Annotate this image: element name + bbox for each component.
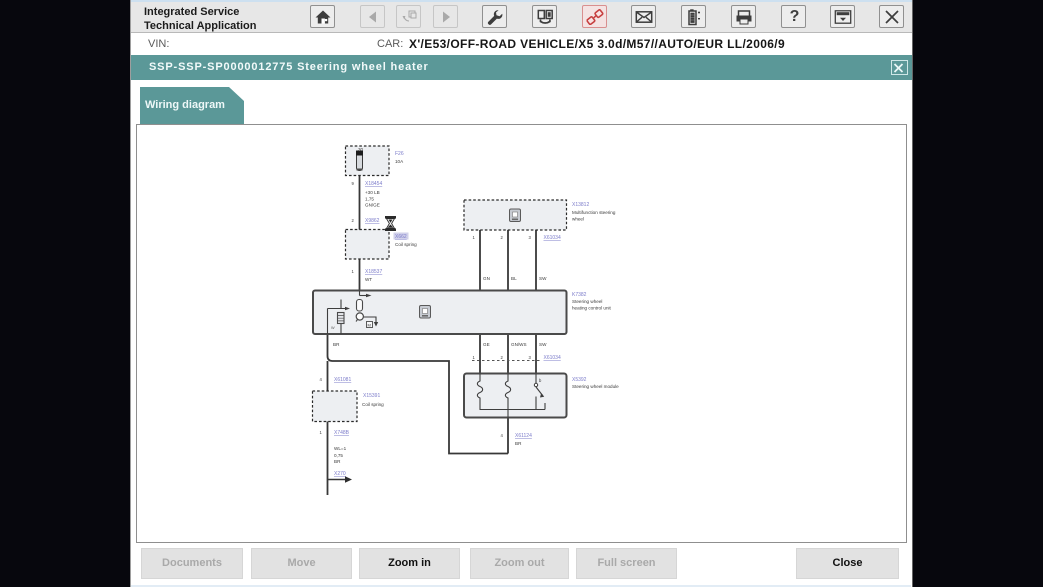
svg-text:9: 9: [352, 181, 355, 186]
svg-text:4: 4: [320, 377, 323, 382]
svg-text:1: 1: [320, 430, 323, 435]
svg-text:X61034: X61034: [544, 355, 561, 361]
svg-text:WL=1: WL=1: [334, 446, 347, 451]
svg-text:SW: SW: [539, 342, 547, 347]
svg-text:GE: GE: [483, 342, 490, 347]
svg-text:2: 2: [501, 235, 504, 240]
svg-text:Multifunction steering: Multifunction steering: [572, 210, 616, 215]
svg-text:X61034: X61034: [544, 235, 561, 241]
svg-text:10A: 10A: [395, 159, 404, 164]
svg-text:3: 3: [529, 235, 532, 240]
svg-text:30: 30: [358, 147, 364, 152]
svg-text:Coil spring: Coil spring: [362, 402, 384, 407]
svg-text:SW: SW: [539, 276, 547, 281]
svg-text:M: M: [368, 322, 371, 327]
svg-text:BL: BL: [511, 276, 517, 281]
svg-text:Steering wheel module: Steering wheel module: [572, 384, 619, 389]
svg-text:X61081: X61081: [334, 377, 351, 383]
svg-text:1,75: 1,75: [365, 197, 374, 202]
svg-text:X18537: X18537: [365, 269, 382, 275]
svg-text:4: 4: [501, 433, 504, 438]
svg-text:1: 1: [473, 355, 476, 360]
svg-text:0,75: 0,75: [334, 453, 343, 458]
svg-text:X9862: X9862: [365, 218, 380, 224]
svg-text:WT: WT: [365, 277, 372, 282]
svg-text:GN/GE: GN/GE: [365, 203, 380, 208]
svg-text:2: 2: [352, 218, 355, 223]
svg-text:Steering wheel: Steering wheel: [572, 299, 602, 304]
svg-text:X662: X662: [395, 234, 407, 240]
svg-text:BR: BR: [333, 342, 340, 347]
svg-text:BR: BR: [515, 441, 522, 446]
svg-text:1: 1: [352, 269, 355, 274]
svg-text:X61124: X61124: [515, 433, 532, 439]
svg-text:X18454: X18454: [365, 181, 382, 187]
svg-text:Coil spring: Coil spring: [395, 242, 417, 247]
svg-text:wheel: wheel: [572, 217, 584, 222]
svg-text:W: W: [331, 326, 335, 330]
svg-text:F26: F26: [395, 151, 404, 157]
svg-text:1: 1: [473, 235, 476, 240]
svg-text:heating control unit: heating control unit: [572, 306, 612, 311]
svg-text:GN/WS: GN/WS: [511, 342, 527, 347]
svg-text:X15391: X15391: [363, 393, 380, 399]
svg-text:BR: BR: [334, 459, 341, 464]
svg-text:X5392: X5392: [572, 377, 587, 383]
svg-text:X13812: X13812: [572, 202, 589, 208]
svg-text:X270: X270: [334, 471, 346, 477]
svg-text:2: 2: [501, 355, 504, 360]
svg-text:+30 LB: +30 LB: [365, 190, 380, 195]
svg-text:GN: GN: [483, 276, 490, 281]
svg-text:3: 3: [529, 355, 532, 360]
svg-text:X748B: X748B: [334, 430, 350, 436]
svg-text:K7382: K7382: [572, 292, 587, 298]
